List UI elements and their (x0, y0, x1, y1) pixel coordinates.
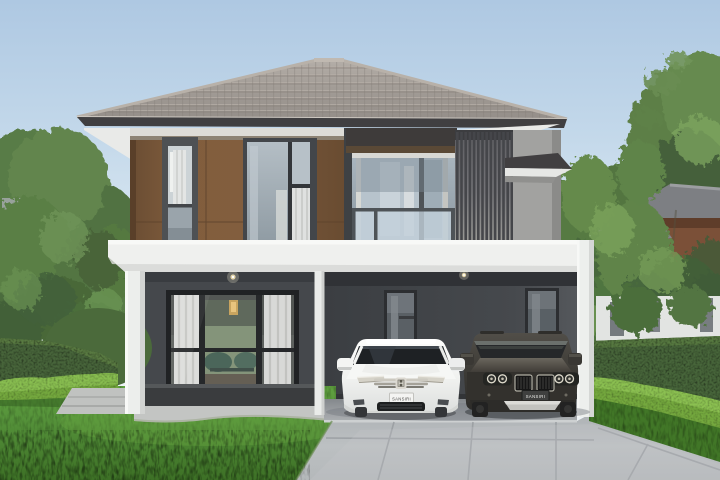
svg-text:SANSIRI: SANSIRI (392, 397, 411, 402)
svg-text:SANSIRI: SANSIRI (526, 394, 546, 399)
